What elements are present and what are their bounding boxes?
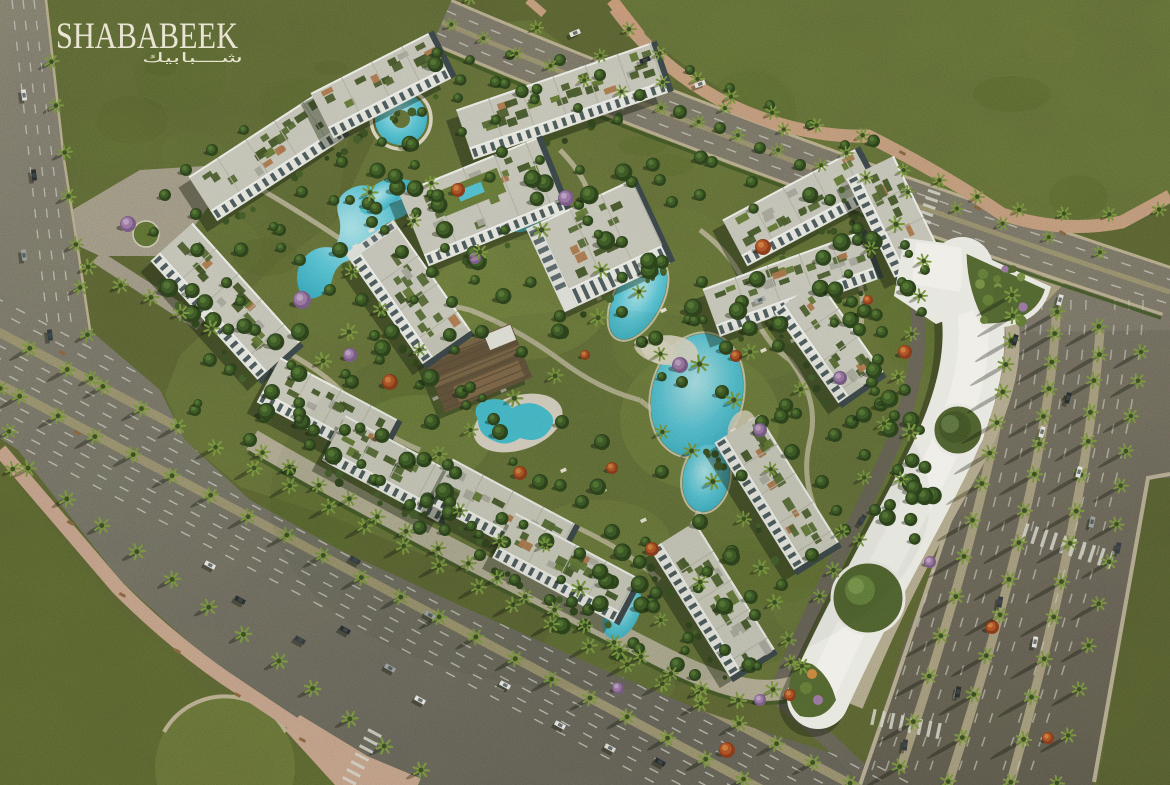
svg-text:شـــبابيك: شـــبابيك [142,50,243,65]
